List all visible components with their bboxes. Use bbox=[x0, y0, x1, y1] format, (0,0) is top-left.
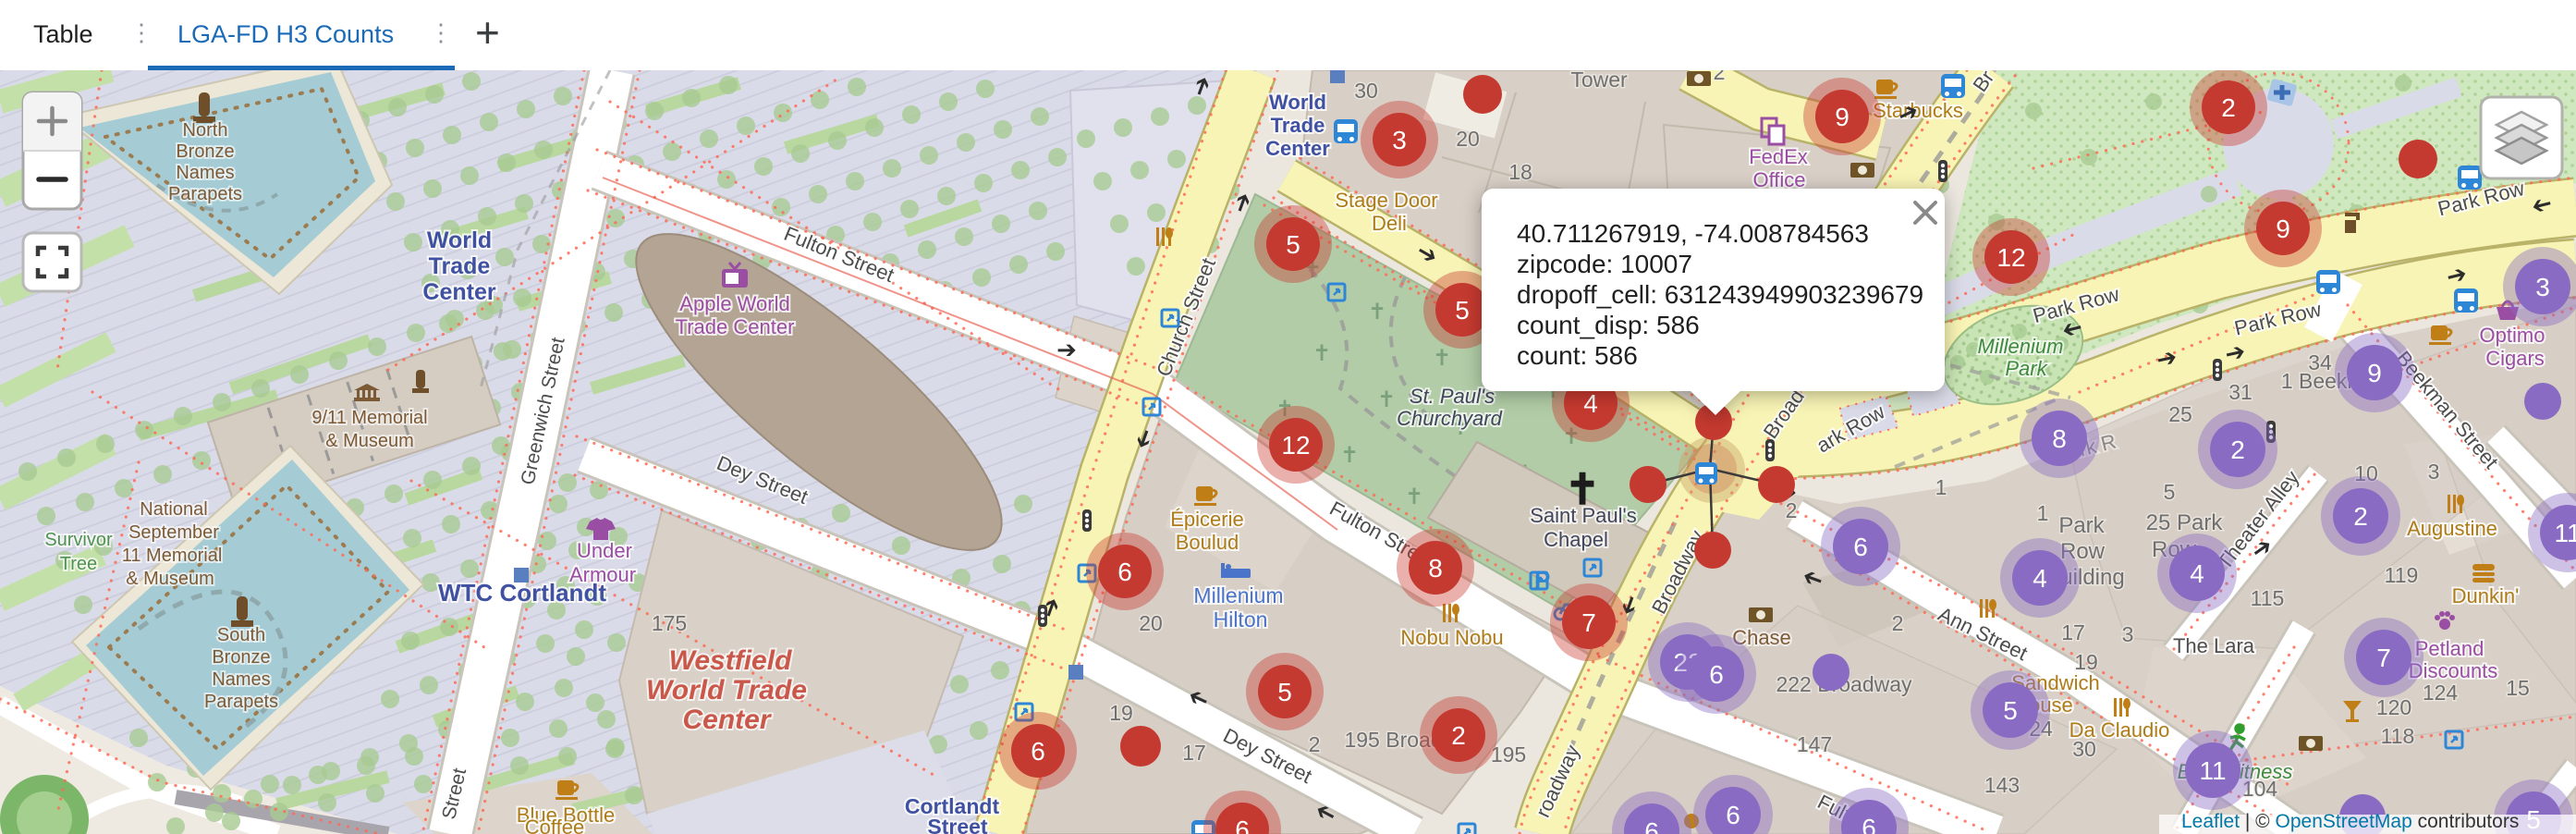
svg-text:9/11 Memorial: 9/11 Memorial bbox=[311, 408, 427, 428]
svg-text:Bronze: Bronze bbox=[176, 141, 234, 162]
svg-text:Optimo: Optimo bbox=[2480, 324, 2545, 347]
svg-text:3: 3 bbox=[2428, 460, 2440, 484]
svg-text:Churchyard: Churchyard bbox=[1397, 407, 1502, 430]
svg-text:195: 195 bbox=[1491, 742, 1526, 767]
svg-text:2: 2 bbox=[2230, 435, 2245, 464]
svg-text:4: 4 bbox=[1583, 389, 1598, 418]
svg-text:Millenium: Millenium bbox=[1978, 335, 2064, 358]
svg-text:12: 12 bbox=[1281, 431, 1310, 460]
svg-text:2: 2 bbox=[1451, 721, 1466, 750]
svg-text:Petland: Petland bbox=[2415, 637, 2484, 660]
svg-text:8: 8 bbox=[2052, 424, 2067, 453]
svg-text:Under: Under bbox=[577, 539, 632, 562]
svg-text:2: 2 bbox=[1892, 611, 1904, 635]
svg-text:North: North bbox=[183, 120, 228, 141]
svg-text:5: 5 bbox=[1286, 230, 1300, 259]
svg-text:Trade: Trade bbox=[1271, 114, 1325, 137]
svg-text:✝: ✝ bbox=[1368, 300, 1386, 325]
svg-text:2: 2 bbox=[1714, 70, 1726, 84]
svg-text:The Lara: The Lara bbox=[2173, 634, 2255, 657]
svg-text:Trade: Trade bbox=[429, 253, 491, 279]
svg-text:120: 120 bbox=[2376, 695, 2411, 719]
svg-text:6: 6 bbox=[1726, 801, 1740, 829]
svg-text:2: 2 bbox=[2221, 93, 2236, 122]
svg-text:Parapets: Parapets bbox=[204, 692, 278, 712]
svg-text:9: 9 bbox=[2276, 215, 2290, 243]
svg-text:Parapets: Parapets bbox=[168, 184, 242, 204]
svg-text:4: 4 bbox=[2033, 564, 2047, 593]
svg-text:Apple World: Apple World bbox=[679, 292, 789, 315]
svg-text:South: South bbox=[217, 625, 265, 645]
svg-text:Millenium: Millenium bbox=[1193, 583, 1283, 607]
svg-text:Westfield: Westfield bbox=[669, 645, 792, 676]
svg-text:Augustine: Augustine bbox=[2407, 517, 2497, 540]
svg-text:3: 3 bbox=[2535, 273, 2550, 301]
svg-text:7: 7 bbox=[1581, 608, 1596, 637]
svg-text:Center: Center bbox=[682, 705, 772, 735]
svg-text:124: 124 bbox=[2423, 681, 2459, 705]
svg-text:18: 18 bbox=[1508, 160, 1532, 184]
svg-text:17: 17 bbox=[1182, 741, 1206, 765]
svg-text:Cigars: Cigars bbox=[2485, 347, 2545, 370]
svg-text:5: 5 bbox=[1277, 678, 1292, 706]
svg-text:11: 11 bbox=[2199, 756, 2226, 785]
svg-text:✝: ✝ bbox=[1405, 484, 1423, 509]
svg-text:Dunkin': Dunkin' bbox=[2452, 584, 2520, 607]
svg-text:6: 6 bbox=[1644, 817, 1659, 834]
svg-text:6: 6 bbox=[1117, 558, 1132, 586]
svg-text:118: 118 bbox=[2381, 724, 2415, 748]
svg-text:9: 9 bbox=[2367, 359, 2382, 387]
svg-text:6: 6 bbox=[1235, 816, 1250, 834]
svg-text:Nobu Nobu: Nobu Nobu bbox=[1400, 626, 1503, 649]
svg-text:Deli: Deli bbox=[1372, 212, 1407, 235]
svg-text:dropoff_cell: 6312439499032396: dropoff_cell: 631243949903239679 bbox=[1517, 280, 1923, 309]
svg-text:& Museum: & Museum bbox=[126, 569, 214, 589]
svg-text:count: 586: count: 586 bbox=[1517, 341, 1638, 370]
svg-text:Hilton: Hilton bbox=[1214, 607, 1268, 632]
svg-text:National: National bbox=[140, 499, 207, 520]
svg-text:2: 2 bbox=[2353, 502, 2368, 531]
svg-text:Stage Door: Stage Door bbox=[1335, 189, 1437, 212]
svg-text:Survivor: Survivor bbox=[44, 530, 113, 550]
svg-text:Names: Names bbox=[176, 163, 234, 183]
svg-text:FedEx: FedEx bbox=[1749, 145, 1808, 168]
svg-text:September: September bbox=[128, 522, 219, 543]
svg-text:20: 20 bbox=[1456, 127, 1480, 151]
svg-text:P: P bbox=[1534, 566, 1550, 594]
svg-text:Saint Paul's: Saint Paul's bbox=[1530, 504, 1637, 527]
svg-text:5: 5 bbox=[2003, 696, 2018, 725]
svg-text:Center: Center bbox=[422, 279, 495, 305]
svg-text:World Trade: World Trade bbox=[646, 675, 807, 705]
svg-text:Park: Park bbox=[2058, 513, 2105, 538]
svg-text:✝: ✝ bbox=[1312, 341, 1331, 366]
svg-text:Tree: Tree bbox=[60, 554, 97, 574]
svg-text:15: 15 bbox=[2506, 676, 2530, 700]
svg-text:175: 175 bbox=[652, 611, 687, 635]
svg-text:3: 3 bbox=[1392, 126, 1407, 154]
svg-text:Trade Center: Trade Center bbox=[676, 315, 795, 338]
svg-text:Épicerie: Épicerie bbox=[1170, 508, 1243, 531]
svg-text:8: 8 bbox=[1428, 554, 1443, 583]
svg-text:& Museum: & Museum bbox=[325, 431, 414, 451]
svg-text:Street: Street bbox=[927, 815, 988, 834]
svg-text:Boulud: Boulud bbox=[1176, 531, 1239, 554]
svg-text:147: 147 bbox=[1797, 732, 1832, 756]
svg-text:Office: Office bbox=[1752, 168, 1805, 191]
svg-text:9: 9 bbox=[1835, 103, 1850, 131]
svg-text:17: 17 bbox=[2061, 620, 2085, 644]
svg-text:30: 30 bbox=[1354, 79, 1378, 103]
svg-text:7: 7 bbox=[2376, 644, 2391, 672]
svg-text:1: 1 bbox=[2037, 501, 2049, 525]
svg-text:5: 5 bbox=[1455, 296, 1470, 325]
svg-text:World: World bbox=[427, 227, 492, 253]
svg-text:Names: Names bbox=[212, 669, 270, 690]
svg-text:1: 1 bbox=[1935, 475, 1947, 499]
svg-text:World: World bbox=[1269, 91, 1326, 114]
svg-text:Center: Center bbox=[1265, 137, 1330, 160]
svg-text:5: 5 bbox=[2164, 480, 2176, 504]
svg-text:zipcode: 10007: zipcode: 10007 bbox=[1517, 250, 1692, 278]
svg-text:6: 6 bbox=[1862, 814, 1876, 834]
svg-text:11 Memorial: 11 Memorial bbox=[122, 546, 223, 566]
svg-text:11: 11 bbox=[2554, 519, 2576, 547]
svg-text:Chapel: Chapel bbox=[1544, 528, 1608, 551]
svg-text:6: 6 bbox=[1709, 660, 1724, 689]
svg-text:Park: Park bbox=[2005, 357, 2047, 380]
svg-text:3: 3 bbox=[2122, 622, 2134, 646]
svg-text:✝: ✝ bbox=[1377, 387, 1396, 412]
svg-text:Da Claudio: Da Claudio bbox=[2069, 718, 2170, 742]
svg-text:St. Paul's: St. Paul's bbox=[1410, 385, 1495, 408]
svg-text:119: 119 bbox=[2385, 563, 2419, 587]
svg-text:143: 143 bbox=[1984, 773, 2020, 797]
svg-text:6: 6 bbox=[1031, 737, 1045, 766]
svg-text:40.711267919, -74.008784563: 40.711267919, -74.008784563 bbox=[1517, 219, 1869, 248]
svg-text:Leaflet | © OpenStreetMap cont: Leaflet | © OpenStreetMap contributors bbox=[2181, 811, 2519, 832]
svg-text:31: 31 bbox=[2228, 380, 2252, 404]
svg-text:count_disp: 586: count_disp: 586 bbox=[1517, 311, 1700, 339]
svg-text:25: 25 bbox=[2168, 402, 2192, 426]
svg-text:✝: ✝ bbox=[1340, 443, 1359, 468]
svg-text:6: 6 bbox=[1853, 533, 1868, 561]
svg-text:4: 4 bbox=[2190, 559, 2204, 588]
svg-text:12: 12 bbox=[1996, 243, 2025, 272]
svg-text:19: 19 bbox=[1109, 701, 1133, 725]
svg-text:25 Park: 25 Park bbox=[2146, 510, 2224, 535]
svg-text:➔: ➔ bbox=[1056, 336, 1077, 363]
svg-text:Coffee: Coffee bbox=[525, 816, 584, 834]
svg-text:20: 20 bbox=[1139, 611, 1163, 635]
svg-text:Bronze: Bronze bbox=[212, 647, 270, 668]
svg-text:Armour: Armour bbox=[569, 563, 636, 586]
svg-text:Tower: Tower bbox=[1570, 70, 1628, 92]
svg-text:2: 2 bbox=[1309, 732, 1321, 756]
svg-text:✝: ✝ bbox=[1433, 346, 1451, 371]
svg-text:115: 115 bbox=[2251, 586, 2285, 610]
